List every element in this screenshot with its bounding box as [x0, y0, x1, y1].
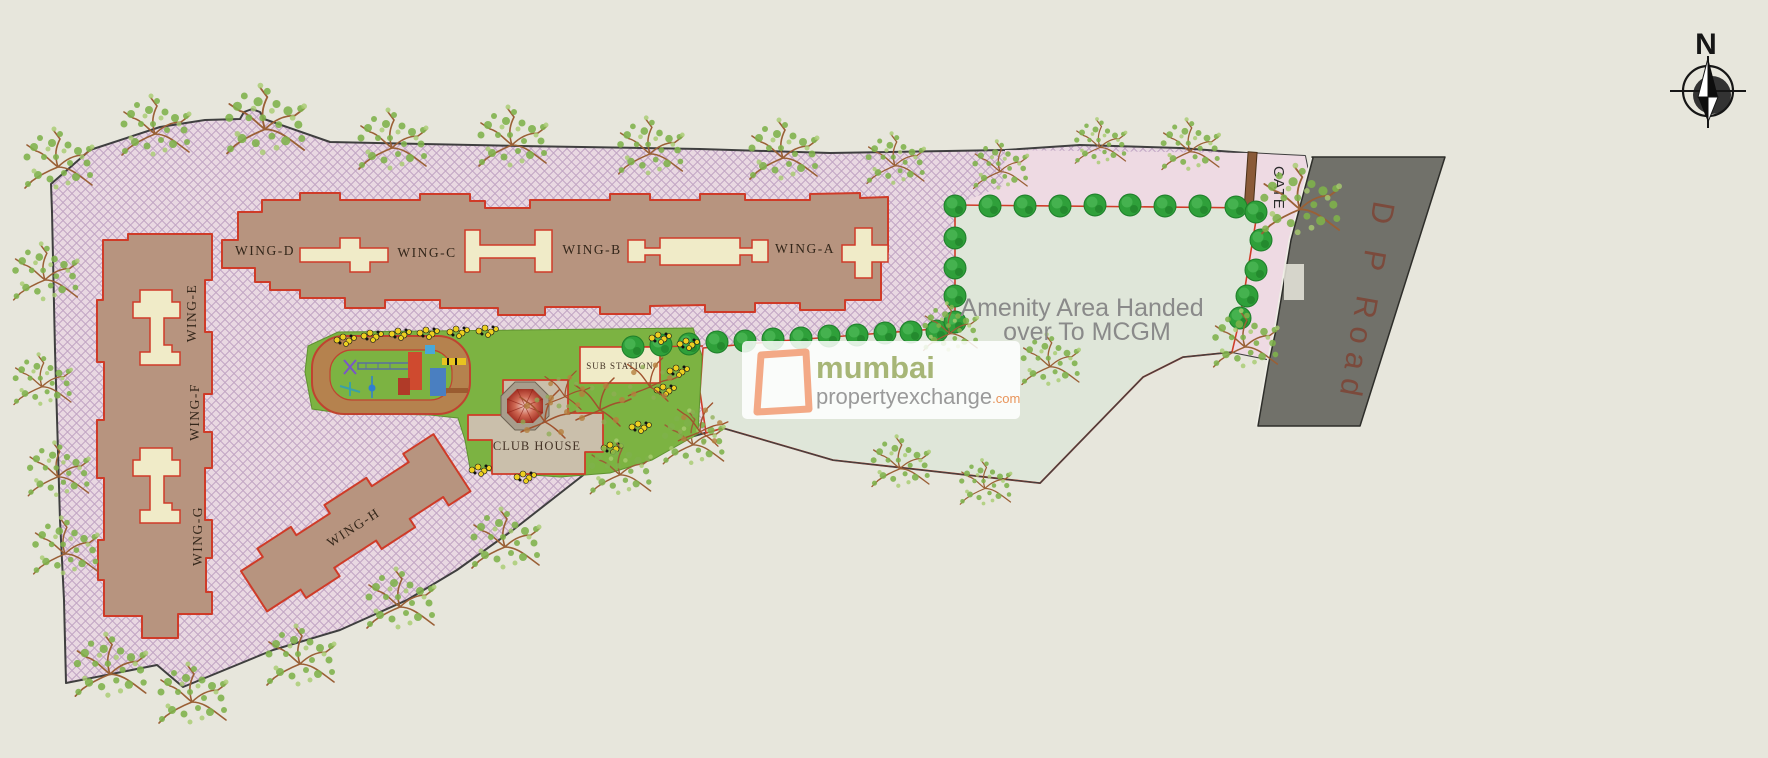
- building-strip-west: WING-E WING-F WING-G: [97, 234, 212, 638]
- compass-n-label: N: [1695, 28, 1717, 61]
- club-house-label: CLUB HOUSE: [493, 439, 581, 453]
- wing-f-label: WING-F: [187, 383, 202, 441]
- amenity-label-line2: over To MCGM: [1003, 318, 1171, 346]
- site-plan: D P Road GATE: [0, 0, 1768, 758]
- wing-c-label: WING-C: [397, 245, 456, 260]
- logo-secondary-text: propertyexchange.com: [816, 384, 1020, 409]
- site-plan-svg: D P Road GATE: [0, 0, 1768, 758]
- building-strip-north: WING-D WING-C WING-B WING-A: [222, 193, 888, 315]
- wing-g-label: WING-G: [190, 506, 205, 566]
- wing-b-label: WING-B: [562, 242, 621, 257]
- sub-station: SUB STATION: [580, 347, 660, 383]
- wing-a-label: WING-A: [775, 241, 835, 256]
- wing-e-label: WING-E: [184, 284, 199, 342]
- road-notch: [1284, 264, 1304, 300]
- watermark-logo: mumbai propertyexchange.com: [742, 341, 1020, 419]
- playground: [312, 336, 470, 414]
- logo-brand-text: mumbai: [816, 350, 935, 385]
- wing-d-label: WING-D: [235, 243, 295, 258]
